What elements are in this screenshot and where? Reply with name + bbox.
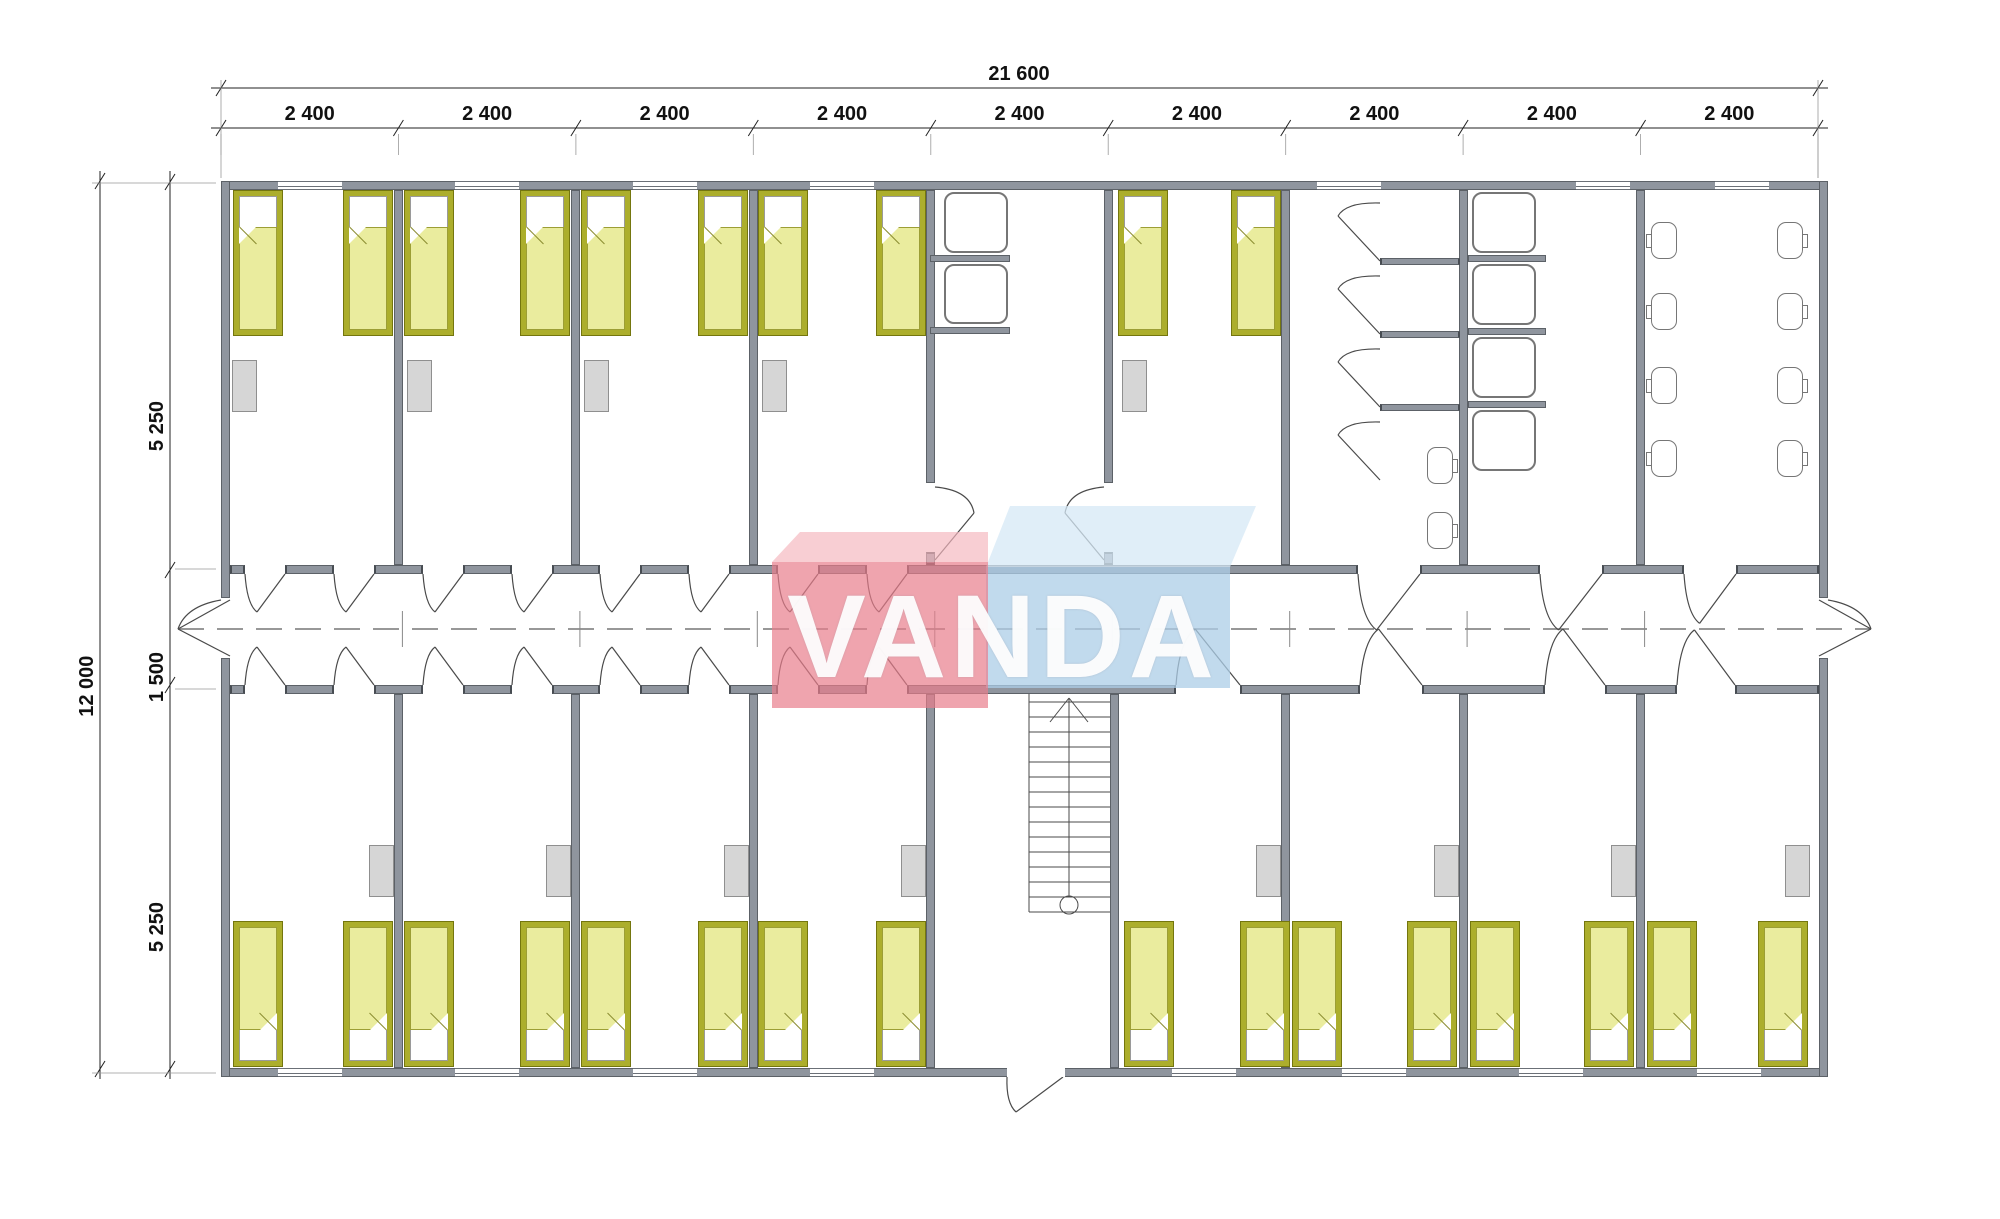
toilet-tank — [1802, 305, 1808, 319]
bed — [1758, 921, 1808, 1067]
wardrobe — [724, 845, 749, 897]
corridor-wall-segment — [1602, 565, 1684, 574]
wardrobe — [1434, 845, 1459, 897]
bed — [233, 921, 283, 1067]
corridor-wall-segment — [1605, 685, 1677, 694]
dim-module-width: 2 400 — [285, 103, 335, 126]
toilet-tank — [1646, 452, 1652, 466]
door-swing-arc — [245, 647, 257, 685]
sink — [944, 264, 1008, 324]
door-leaf — [1379, 629, 1422, 685]
exterior-wall-left — [221, 181, 230, 598]
door-leaf — [346, 647, 374, 685]
bed-blanket — [704, 927, 742, 1030]
toilet-tank — [1802, 379, 1808, 393]
cubicle-divider — [1380, 331, 1460, 338]
bed-blanket — [1246, 927, 1284, 1030]
wardrobe — [1785, 845, 1810, 897]
bed — [1647, 921, 1697, 1067]
floor-plan: 21 600 12 000 5 250 1 500 5 250 2 4002 4… — [0, 0, 2000, 1219]
logo-blue-top-face — [986, 506, 1256, 567]
door-leaf — [1338, 362, 1380, 407]
partition-wall — [571, 190, 580, 565]
window — [633, 181, 697, 190]
door-swing-arc — [334, 574, 346, 612]
corridor-wall-segment — [640, 565, 689, 574]
toilet — [1651, 367, 1677, 404]
door-leaf — [1338, 216, 1380, 261]
door-leaf — [435, 647, 463, 685]
bed — [1118, 190, 1168, 336]
partition-wall — [1636, 190, 1645, 565]
door-swing-arc — [1360, 629, 1379, 685]
bed-blanket — [1237, 227, 1275, 330]
sink — [944, 192, 1008, 253]
partition-wall — [1104, 190, 1113, 483]
bed-blanket — [587, 927, 625, 1030]
dim-module-width: 2 400 — [1704, 103, 1754, 126]
corridor-wall-segment — [463, 565, 512, 574]
door-leaf — [524, 647, 552, 685]
bed-blanket — [526, 227, 564, 330]
corridor-wall-segment — [374, 565, 423, 574]
bed-blanket — [349, 927, 387, 1030]
window — [1697, 1068, 1761, 1077]
door-swing-arc — [689, 574, 701, 612]
toilet — [1777, 367, 1803, 404]
bed-blanket — [410, 227, 448, 330]
corridor-wall-segment — [729, 565, 778, 574]
dim-left-corridor: 1 500 — [146, 652, 169, 702]
partition-wall — [1459, 694, 1468, 1068]
window — [278, 181, 342, 190]
dim-module-width: 2 400 — [462, 103, 512, 126]
corridor-wall-segment — [1736, 565, 1819, 574]
dim-module-width: 2 400 — [994, 103, 1044, 126]
wardrobe — [1256, 845, 1281, 897]
window — [455, 1068, 519, 1077]
corridor-wall-segment — [640, 685, 689, 694]
door-swing-arc — [600, 574, 612, 612]
wall-stub — [1468, 401, 1546, 408]
stair-direction-start — [1060, 896, 1078, 914]
exit-door-leaf — [178, 629, 230, 656]
door-swing-arc — [1540, 574, 1559, 630]
wardrobe — [901, 845, 926, 897]
bed — [343, 190, 393, 336]
bed-blanket — [764, 927, 802, 1030]
wardrobe — [546, 845, 571, 897]
toilet — [1651, 440, 1677, 477]
toilet — [1777, 222, 1803, 259]
wardrobe — [1611, 845, 1636, 897]
shower-tray — [1472, 410, 1536, 471]
door-swing-arc — [512, 574, 524, 612]
bed — [698, 921, 748, 1067]
bed-blanket — [1298, 927, 1336, 1030]
door-swing-arc — [423, 647, 435, 685]
dim-module-width: 2 400 — [1527, 103, 1577, 126]
shower-tray — [1472, 337, 1536, 398]
door-swing-arc — [935, 487, 974, 513]
partition-wall — [749, 190, 758, 565]
bed — [233, 190, 283, 336]
partition-wall — [1281, 190, 1290, 565]
corridor-wall-segment — [1735, 685, 1819, 694]
wardrobe — [232, 360, 257, 412]
door-leaf — [701, 647, 729, 685]
bed — [581, 921, 631, 1067]
dim-left-lower: 5 250 — [146, 902, 169, 952]
window — [455, 181, 519, 190]
door-swing-arc — [1338, 422, 1380, 435]
window — [810, 181, 874, 190]
door-leaf — [346, 574, 374, 612]
toilet — [1777, 293, 1803, 330]
bed — [1407, 921, 1457, 1067]
wall-stub — [930, 255, 1010, 262]
corridor-wall-segment — [729, 685, 778, 694]
door-leaf — [257, 574, 285, 612]
logo-text: VANDA — [775, 578, 1230, 696]
corridor-wall-segment — [230, 565, 245, 574]
corridor-wall-segment — [1420, 565, 1540, 574]
exit-door-arc — [178, 600, 221, 629]
corridor-wall-segment — [374, 685, 423, 694]
door-leaf — [1694, 630, 1735, 685]
wall-stub — [930, 327, 1010, 334]
bed-blanket — [526, 927, 564, 1030]
bed — [343, 921, 393, 1067]
partition-wall — [394, 190, 403, 565]
wall-stub — [1468, 328, 1546, 335]
bed-blanket — [704, 227, 742, 330]
partition-wall — [926, 694, 935, 1068]
door-leaf — [1016, 1077, 1063, 1112]
bed-blanket — [882, 227, 920, 330]
bed — [520, 921, 570, 1067]
wardrobe — [407, 360, 432, 412]
wardrobe — [584, 360, 609, 412]
bed — [404, 190, 454, 336]
corridor-wall-segment — [552, 685, 600, 694]
door-leaf — [1559, 574, 1602, 630]
partition-wall — [571, 694, 580, 1068]
bed-blanket — [239, 227, 277, 330]
door-leaf — [1377, 574, 1420, 630]
door-leaf — [1700, 574, 1736, 623]
dim-module-width: 2 400 — [1172, 103, 1222, 126]
corridor-wall-segment — [463, 685, 512, 694]
corridor-wall-segment — [285, 565, 334, 574]
bed-blanket — [1590, 927, 1628, 1030]
window — [1172, 1068, 1236, 1077]
window — [633, 1068, 697, 1077]
bed — [876, 921, 926, 1067]
bed — [1240, 921, 1290, 1067]
cubicle-divider — [1380, 258, 1460, 265]
door-leaf — [1563, 629, 1605, 685]
toilet-tank — [1646, 234, 1652, 248]
door-leaf — [257, 647, 285, 685]
toilet — [1651, 293, 1677, 330]
exterior-wall-right — [1819, 658, 1828, 1077]
dim-module-width: 2 400 — [640, 103, 690, 126]
window — [1342, 1068, 1406, 1077]
door-swing-arc — [689, 647, 701, 685]
logo-red-top-face — [772, 532, 988, 562]
toilet — [1651, 222, 1677, 259]
door-swing-arc — [1338, 203, 1380, 216]
entrance-opening — [1007, 1068, 1065, 1077]
bed — [1292, 921, 1342, 1067]
exit-door-arc — [1828, 600, 1871, 629]
bed-blanket — [410, 927, 448, 1030]
window — [1715, 181, 1769, 190]
window — [810, 1068, 874, 1077]
partition-wall — [926, 190, 935, 483]
bed-blanket — [1764, 927, 1802, 1030]
corridor-wall-segment — [552, 565, 600, 574]
corridor-wall-segment — [1240, 685, 1360, 694]
bed-blanket — [1124, 227, 1162, 330]
bed-blanket — [349, 227, 387, 330]
toilet — [1427, 512, 1453, 549]
bed — [520, 190, 570, 336]
exit-door-leaf — [1819, 629, 1871, 656]
door-swing-arc — [512, 647, 524, 685]
dim-total-width: 21 600 — [988, 63, 1049, 86]
shower-tray — [1472, 192, 1536, 253]
dim-module-width: 2 400 — [817, 103, 867, 126]
door-leaf — [524, 574, 552, 612]
door-swing-arc — [1545, 629, 1563, 685]
door-leaf — [612, 647, 640, 685]
bed-blanket — [587, 227, 625, 330]
door-swing-arc — [334, 647, 346, 685]
door-swing-arc — [1007, 1077, 1016, 1112]
dim-module-width: 2 400 — [1349, 103, 1399, 126]
door-swing-arc — [1684, 574, 1700, 623]
partition-wall — [1636, 694, 1645, 1068]
door-swing-arc — [1677, 630, 1694, 685]
bed-blanket — [764, 227, 802, 330]
toilet-tank — [1802, 234, 1808, 248]
partition-wall — [1110, 694, 1119, 1068]
bed — [581, 190, 631, 336]
bed-blanket — [239, 927, 277, 1030]
shower-tray — [1472, 264, 1536, 325]
toilet-tank — [1646, 379, 1652, 393]
toilet — [1427, 447, 1453, 484]
wall-stub — [1468, 255, 1546, 262]
door-swing-arc — [600, 647, 612, 685]
bed-blanket — [882, 927, 920, 1030]
bed — [758, 921, 808, 1067]
window — [1519, 1068, 1583, 1077]
toilet — [1777, 440, 1803, 477]
window — [1317, 181, 1381, 190]
toilet-tank — [1452, 459, 1458, 473]
bed — [1124, 921, 1174, 1067]
bed — [1584, 921, 1634, 1067]
toilet-tank — [1646, 305, 1652, 319]
partition-wall — [749, 694, 758, 1068]
door-swing-arc — [1338, 349, 1380, 362]
toilet-tank — [1452, 524, 1458, 538]
exterior-wall-right — [1819, 181, 1828, 598]
partition-wall — [1459, 190, 1468, 565]
bed-blanket — [1130, 927, 1168, 1030]
exterior-wall-left — [221, 658, 230, 1077]
bed — [1470, 921, 1520, 1067]
corridor-wall-segment — [1422, 685, 1545, 694]
bed-blanket — [1476, 927, 1514, 1030]
partition-wall — [394, 694, 403, 1068]
door-leaf — [612, 574, 640, 612]
wardrobe — [1122, 360, 1147, 412]
toilet-tank — [1802, 452, 1808, 466]
door-swing-arc — [1338, 276, 1380, 289]
window — [1576, 181, 1630, 190]
wardrobe — [369, 845, 394, 897]
cubicle-divider — [1380, 404, 1460, 411]
bed — [698, 190, 748, 336]
door-leaf — [1338, 289, 1380, 334]
bed — [758, 190, 808, 336]
door-leaf — [701, 574, 729, 612]
bed-blanket — [1413, 927, 1451, 1030]
door-swing-arc — [423, 574, 435, 612]
corridor-wall-segment — [285, 685, 334, 694]
wardrobe — [762, 360, 787, 412]
bed — [876, 190, 926, 336]
window — [278, 1068, 342, 1077]
bed — [1231, 190, 1281, 336]
bed — [404, 921, 454, 1067]
door-leaf — [1338, 435, 1380, 480]
corridor-wall-segment — [230, 685, 245, 694]
dim-left-upper: 5 250 — [146, 401, 169, 451]
dim-total-height: 12 000 — [76, 656, 99, 717]
bed-blanket — [1653, 927, 1691, 1030]
door-swing-arc — [1358, 574, 1377, 630]
door-leaf — [435, 574, 463, 612]
door-swing-arc — [245, 574, 257, 612]
